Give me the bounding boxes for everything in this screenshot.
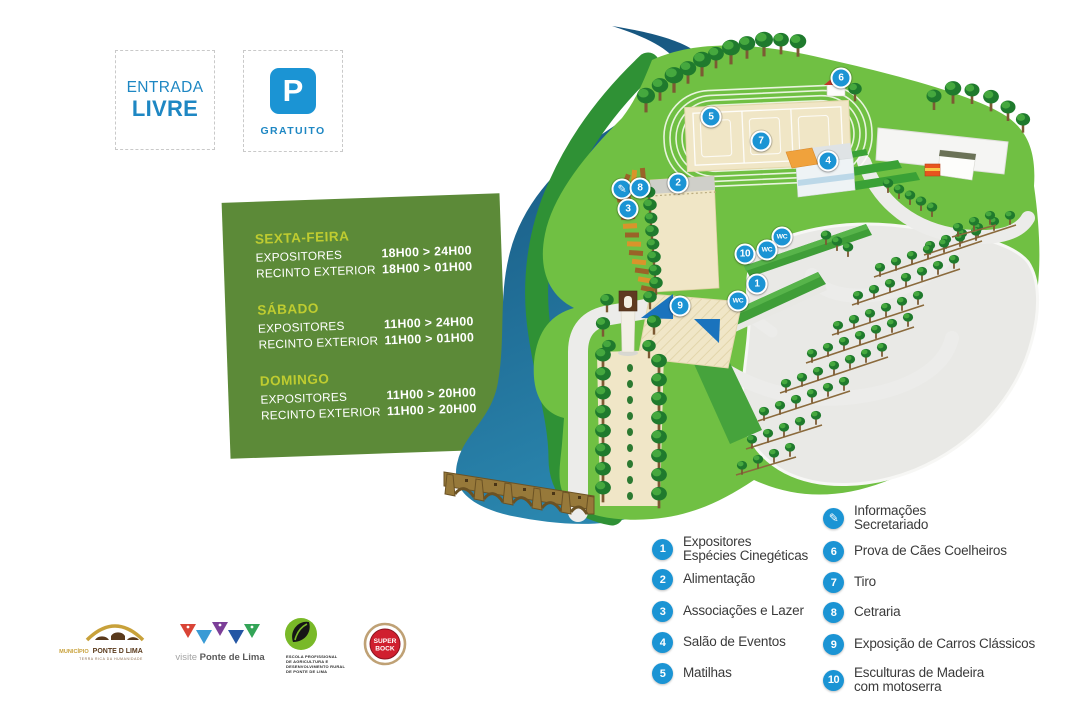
svg-text:MUNICÍPIO PONTE D LIMA: MUNICÍPIO PONTE D LIMA: [59, 647, 143, 655]
event-map-poster: { "colors": { "accent_blue": "#1b94d4", …: [0, 0, 1072, 728]
legend-item-2: 2 Alimentação: [652, 569, 755, 590]
visite-logo-text: visite Ponte de Lima: [172, 652, 268, 663]
super-bock-logo: SUPER BOCK: [363, 622, 407, 666]
legend-item-10: 10 Esculturas de Madeira com motoserra: [823, 666, 984, 695]
municipio-ponte-de-lima-logo: MUNICÍPIO PONTE D LIMA TERRA RICA DA HUM…: [45, 612, 157, 668]
superbock-line1: SUPER: [374, 638, 397, 645]
legend-item-8: 8 Cetraria: [823, 602, 900, 623]
legend-badge-3: 3: [652, 601, 673, 622]
superbock-line2: BOCK: [375, 646, 395, 653]
municipio-tagline: TERRA RICA DA HUMANIDADE: [79, 657, 143, 661]
legend-badge-4: 4: [652, 632, 673, 653]
legend-badge-10: 10: [823, 670, 844, 691]
pavilion-building: [650, 176, 719, 292]
legend-badge-8: 8: [823, 602, 844, 623]
legend-item-6: 6 Prova de Cães Coelheiros: [823, 541, 1007, 562]
legend-badge-7: 7: [823, 572, 844, 593]
legend-item-1: 1 Expositores Espécies Cinegéticas: [652, 535, 808, 564]
pencil-icon: ✎: [823, 508, 844, 529]
visite-ponte-de-lima-logo: [178, 620, 264, 652]
legend-item-4: 4 Salão de Eventos: [652, 632, 786, 653]
legend-badge-9: 9: [823, 634, 844, 655]
legend-item-7: 7 Tiro: [823, 572, 876, 593]
school-logo: [283, 616, 319, 652]
legend-item-info: ✎ Informações Secretariado: [823, 504, 928, 533]
legend-item-5: 5 Matilhas: [652, 663, 732, 684]
legend-item-9: 9 Exposição de Carros Clássicos: [823, 634, 1035, 655]
legend-item-3: 3 Associações e Lazer: [652, 601, 804, 622]
legend-badge-2: 2: [652, 569, 673, 590]
venue-map-illustration: [0, 0, 1072, 728]
legend-badge-5: 5: [652, 663, 673, 684]
legend-badge-1: 1: [652, 539, 673, 560]
municipio-word1: MUNICÍPIO: [59, 647, 89, 655]
legend-badge-6: 6: [823, 541, 844, 562]
school-logo-text: ESCOLA PROFISSIONAL DE AGRICULTURA E DES…: [286, 654, 345, 674]
municipio-word2: PONTE D LIMA: [93, 648, 143, 655]
